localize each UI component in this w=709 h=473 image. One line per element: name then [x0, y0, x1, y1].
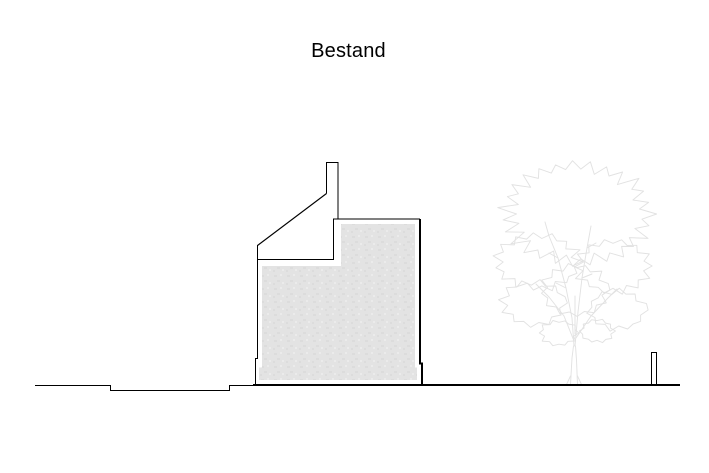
tree-canopy-lobe: [499, 280, 568, 328]
ground: [35, 385, 680, 391]
tree-drawing: [493, 161, 656, 385]
chimney: [327, 163, 339, 220]
drawing-canvas: Bestand: [0, 0, 709, 473]
post-marker: [652, 353, 657, 385]
tree-canopy-lobe: [573, 240, 653, 295]
building-wall-fill: [259, 224, 417, 380]
building-right-wall: [420, 219, 422, 385]
terrain-line-left: [35, 386, 255, 391]
building-left-wall: [256, 245, 258, 385]
tree-canopy-lobe: [587, 288, 648, 331]
tree-branches: [536, 222, 617, 346]
tree-canopy-lobe: [498, 161, 657, 267]
tree-trunk: [567, 346, 582, 385]
building-section: [256, 163, 423, 386]
elevation-drawing: [0, 0, 709, 473]
roof-slope-line: [258, 194, 327, 246]
